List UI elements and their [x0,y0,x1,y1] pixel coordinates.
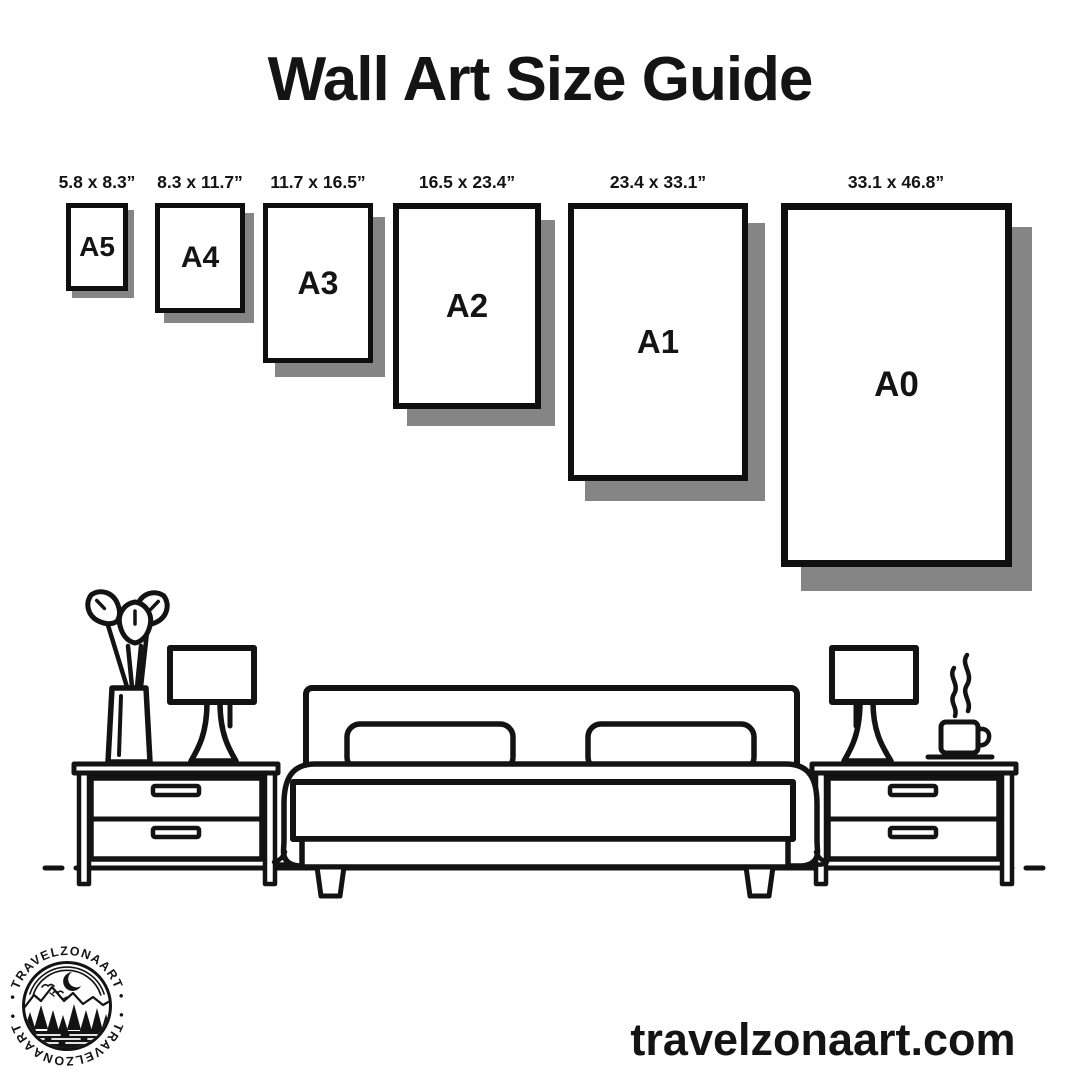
bedroom-illustration: • TRAVELZONAART • • TRAVELZONAART • [0,0,1080,1080]
leaf-center [119,602,150,643]
bed-leg [746,867,773,896]
website-url: travelzonaart.com [600,1014,1046,1066]
plant-vase-icon [81,585,174,762]
drawer-handle [153,786,199,795]
bed-base [302,839,788,867]
table-lamp-left-icon [170,648,254,761]
drawer-handle [890,786,936,795]
steam [952,668,955,716]
bed-leg [317,867,344,896]
drawer-handle [153,828,199,837]
vase [108,688,150,762]
bed-illustration [274,688,827,896]
coffee-cup-icon [928,655,992,757]
brand-logo-badge: • TRAVELZONAART • • TRAVELZONAART • [5,944,128,1068]
drawer-handle [890,828,936,837]
steam [965,655,969,711]
wall-art-size-guide-poster: Wall Art Size Guide 5.8 x 8.3” 8.3 x 11.… [0,0,1080,1080]
bed-frame-front [293,782,793,839]
table-lamp-right-icon [832,648,916,761]
